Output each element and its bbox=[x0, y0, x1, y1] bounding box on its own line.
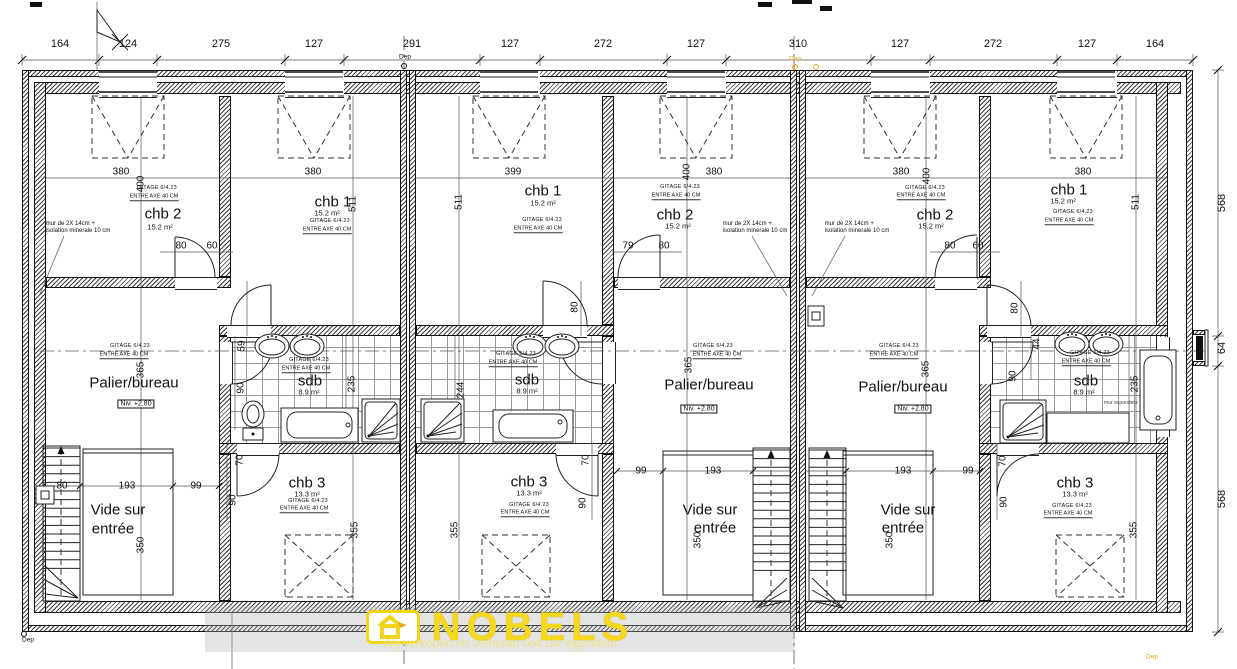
dimension-label: 99 bbox=[190, 481, 201, 492]
annotation-label: GITAGE 6/4.23 bbox=[496, 351, 536, 357]
dimension-label: 127 bbox=[305, 38, 323, 50]
dimension-label: 127 bbox=[1078, 38, 1096, 50]
room-label: chb 1 bbox=[525, 183, 562, 200]
annotation-label: GITAGE 6/4.23 bbox=[1053, 209, 1093, 215]
annotation-label: GITAGE 6/4.23 bbox=[879, 343, 919, 349]
watermark-tagline: Wij verkopen en verhuren ook uw eigendom bbox=[205, 636, 795, 650]
annotation-label: ENTRE AXE 40 CM bbox=[1044, 510, 1093, 518]
dep-marker: Dep bbox=[789, 56, 801, 63]
dimension-label: 80 bbox=[1010, 302, 1021, 313]
room-area-label: 8.9 m² bbox=[516, 387, 537, 396]
floor-plan: NOBELS Wij verkopen en verhuren ook uw e… bbox=[0, 0, 1237, 669]
dimension-label: 235 bbox=[1130, 376, 1141, 393]
dimension-label: 90 bbox=[1008, 370, 1019, 381]
annotation-label: ENTRE AXE 40 CM bbox=[897, 192, 946, 200]
dimension-label: 511 bbox=[1131, 194, 1142, 210]
annotation-label: mur separateur bbox=[1104, 400, 1138, 406]
dimension-label: 235 bbox=[347, 376, 358, 393]
dimension-label: 80 bbox=[658, 241, 669, 252]
wall-note: mur de 2X 14cm + isolation minerale 10 c… bbox=[825, 221, 890, 235]
room-label: Vide sur bbox=[91, 502, 146, 519]
annotation-label: ENTRE AXE 40 CM bbox=[693, 351, 742, 359]
dimension-label: 272 bbox=[984, 38, 1002, 50]
dep-marker: Dep bbox=[1146, 654, 1158, 661]
dimension-label: 365 bbox=[136, 362, 147, 379]
dimension-label: 59 bbox=[237, 340, 248, 351]
dimension-label: 127 bbox=[501, 38, 519, 50]
dimension-label: 244 bbox=[456, 382, 467, 399]
annotation-label: ENTRE AXE 40 CM bbox=[652, 192, 701, 200]
dimension-label: 355 bbox=[1129, 522, 1140, 539]
annotation-label: GITAGE 6/4.23 bbox=[660, 184, 700, 190]
dimension-label: 310 bbox=[789, 38, 807, 50]
room-area-label: 8.9 m² bbox=[298, 388, 319, 397]
dimension-label: 127 bbox=[891, 38, 909, 50]
annotation-label: ENTRE AXE 40 CM bbox=[303, 226, 352, 234]
room-area-label: 15.2 m² bbox=[530, 199, 555, 208]
dimension-label: 124 bbox=[119, 38, 137, 50]
annotation-label: GITAGE 6/4.23 bbox=[1070, 350, 1110, 356]
dimension-label: 380 bbox=[893, 167, 910, 178]
room-label: Palier/bureau bbox=[858, 379, 947, 396]
dimension-label: 70 bbox=[998, 455, 1009, 466]
level-badge: Niv. +2.80 bbox=[117, 400, 154, 409]
dep-marker: Dep bbox=[399, 54, 411, 61]
dimension-label: 365 bbox=[921, 361, 932, 378]
room-area-label: 15.2 m² bbox=[314, 209, 339, 218]
dimension-label: 365 bbox=[684, 357, 695, 374]
dimension-label: 193 bbox=[705, 466, 722, 477]
room-area-label: 15.2 m² bbox=[665, 222, 690, 231]
watermark: NOBELS Wij verkopen en verhuren ook uw e… bbox=[205, 604, 795, 654]
annotation-label: ENTRE AXE 40 CM bbox=[501, 509, 550, 517]
room-label: Palier/bureau bbox=[89, 375, 178, 392]
room-area-label: 15.2 m² bbox=[918, 222, 943, 231]
level-badge: Niv. +2.80 bbox=[894, 405, 931, 414]
annotation-label: GITAGE 6/4.23 bbox=[137, 185, 177, 191]
room-area-label: 13.3 m² bbox=[1062, 490, 1087, 499]
dimension-label: 70 bbox=[235, 454, 246, 465]
annotation-label: ENTRE AXE 40 CM bbox=[100, 351, 149, 359]
dimension-label: 44 bbox=[1032, 338, 1043, 349]
dimension-label: 355 bbox=[450, 522, 461, 539]
annotation-label: GITAGE 6/4.23 bbox=[288, 498, 328, 504]
annotation-label: GITAGE 6/4.23 bbox=[1052, 503, 1092, 509]
annotation-label: GITAGE 6/4.23 bbox=[522, 217, 562, 223]
annotation-label: ENTRE AXE 40 CM bbox=[1045, 217, 1094, 225]
dimension-label: 380 bbox=[1075, 167, 1092, 178]
dimension-label: 399 bbox=[505, 167, 522, 178]
dimension-label: 164 bbox=[51, 38, 69, 50]
dimension-label: 79 bbox=[622, 241, 633, 252]
annotation-label: GITAGE 6/4.23 bbox=[905, 185, 945, 191]
annotation-label: ENTRE AXE 40 CM bbox=[282, 365, 331, 373]
dimension-label: 272 bbox=[594, 38, 612, 50]
dimension-label: 70 bbox=[581, 454, 592, 465]
dimension-label: 60 bbox=[206, 241, 217, 252]
annotation-label: ENTRE AXE 40 CM bbox=[1062, 358, 1111, 366]
room-area-label: 13.3 m² bbox=[516, 489, 541, 498]
annotation-label: ENTRE AXE 40 CM bbox=[514, 225, 563, 233]
dimension-label: 355 bbox=[350, 522, 361, 539]
dimension-label: 90 bbox=[228, 494, 239, 505]
room-area-label: 15.2 m² bbox=[1050, 197, 1075, 206]
dimension-label: 380 bbox=[113, 167, 130, 178]
dimension-label: 350 bbox=[693, 532, 704, 549]
room-label: Vide sur bbox=[881, 502, 936, 519]
annotation-label: ENTRE AXE 40 CM bbox=[130, 193, 179, 201]
dimension-label: 164 bbox=[1146, 38, 1164, 50]
dimension-label: 568 bbox=[1216, 194, 1228, 212]
annotation-label: ENTRE AXE 40 CM bbox=[489, 359, 538, 367]
plan-graphics bbox=[0, 0, 1237, 669]
wall-note: mur de 2X 14cm + isolation minerale 10 c… bbox=[723, 221, 788, 235]
annotation-label: ENTRE AXE 40 CM bbox=[870, 351, 919, 359]
dimension-label: 350 bbox=[885, 532, 896, 549]
dimension-label: 275 bbox=[212, 38, 230, 50]
dimension-label: 400 bbox=[922, 168, 933, 185]
dimension-label: 90 bbox=[578, 497, 589, 508]
dimension-label: 291 bbox=[403, 38, 421, 50]
dimension-label: 99 bbox=[635, 466, 646, 477]
dimension-label: 99 bbox=[962, 466, 973, 477]
dimension-label: 511 bbox=[454, 194, 465, 210]
room-label: chb 2 bbox=[145, 206, 182, 223]
dimension-label: 400 bbox=[682, 164, 693, 181]
dimension-label: 80 bbox=[944, 241, 955, 252]
room-area-label: 8.9 m² bbox=[1073, 388, 1094, 397]
annotation-label: GITAGE 6/4.23 bbox=[110, 343, 150, 349]
dimension-label: 380 bbox=[706, 167, 723, 178]
level-badge: Niv. +2.80 bbox=[680, 405, 717, 414]
room-label: Palier/bureau bbox=[664, 377, 753, 394]
dimension-label: 193 bbox=[895, 466, 912, 477]
annotation-label: GITAGE 6/4.23 bbox=[509, 502, 549, 508]
dimension-label: 568 bbox=[1216, 490, 1228, 508]
dimension-label: 80 bbox=[56, 481, 67, 492]
dimension-label: 127 bbox=[687, 38, 705, 50]
wall-note: mur de 2X 14cm + isolation minerale 10 c… bbox=[46, 221, 111, 235]
dimension-label: 80 bbox=[570, 301, 581, 312]
room-label: Vide sur bbox=[683, 502, 738, 519]
annotation-label: GITAGE 6/4.23 bbox=[693, 343, 733, 349]
annotation-label: GITAGE 6/4.23 bbox=[310, 218, 350, 224]
room-label: entrée bbox=[92, 521, 135, 538]
dimension-label: 380 bbox=[305, 167, 322, 178]
dimension-label: 90 bbox=[236, 382, 247, 393]
dimension-label: 350 bbox=[136, 537, 147, 554]
annotation-label: GITAGE 6/4.23 bbox=[289, 357, 329, 363]
dimension-label: 193 bbox=[119, 481, 136, 492]
dep-marker: Dep bbox=[22, 637, 34, 644]
dimension-label: 90 bbox=[999, 496, 1010, 507]
dimension-label: 64 bbox=[1216, 342, 1228, 354]
room-area-label: 15.2 m² bbox=[147, 223, 172, 232]
dimension-label: 80 bbox=[175, 241, 186, 252]
annotation-label: ENTRE AXE 40 CM bbox=[280, 505, 329, 513]
dimension-label: 60 bbox=[972, 241, 983, 252]
